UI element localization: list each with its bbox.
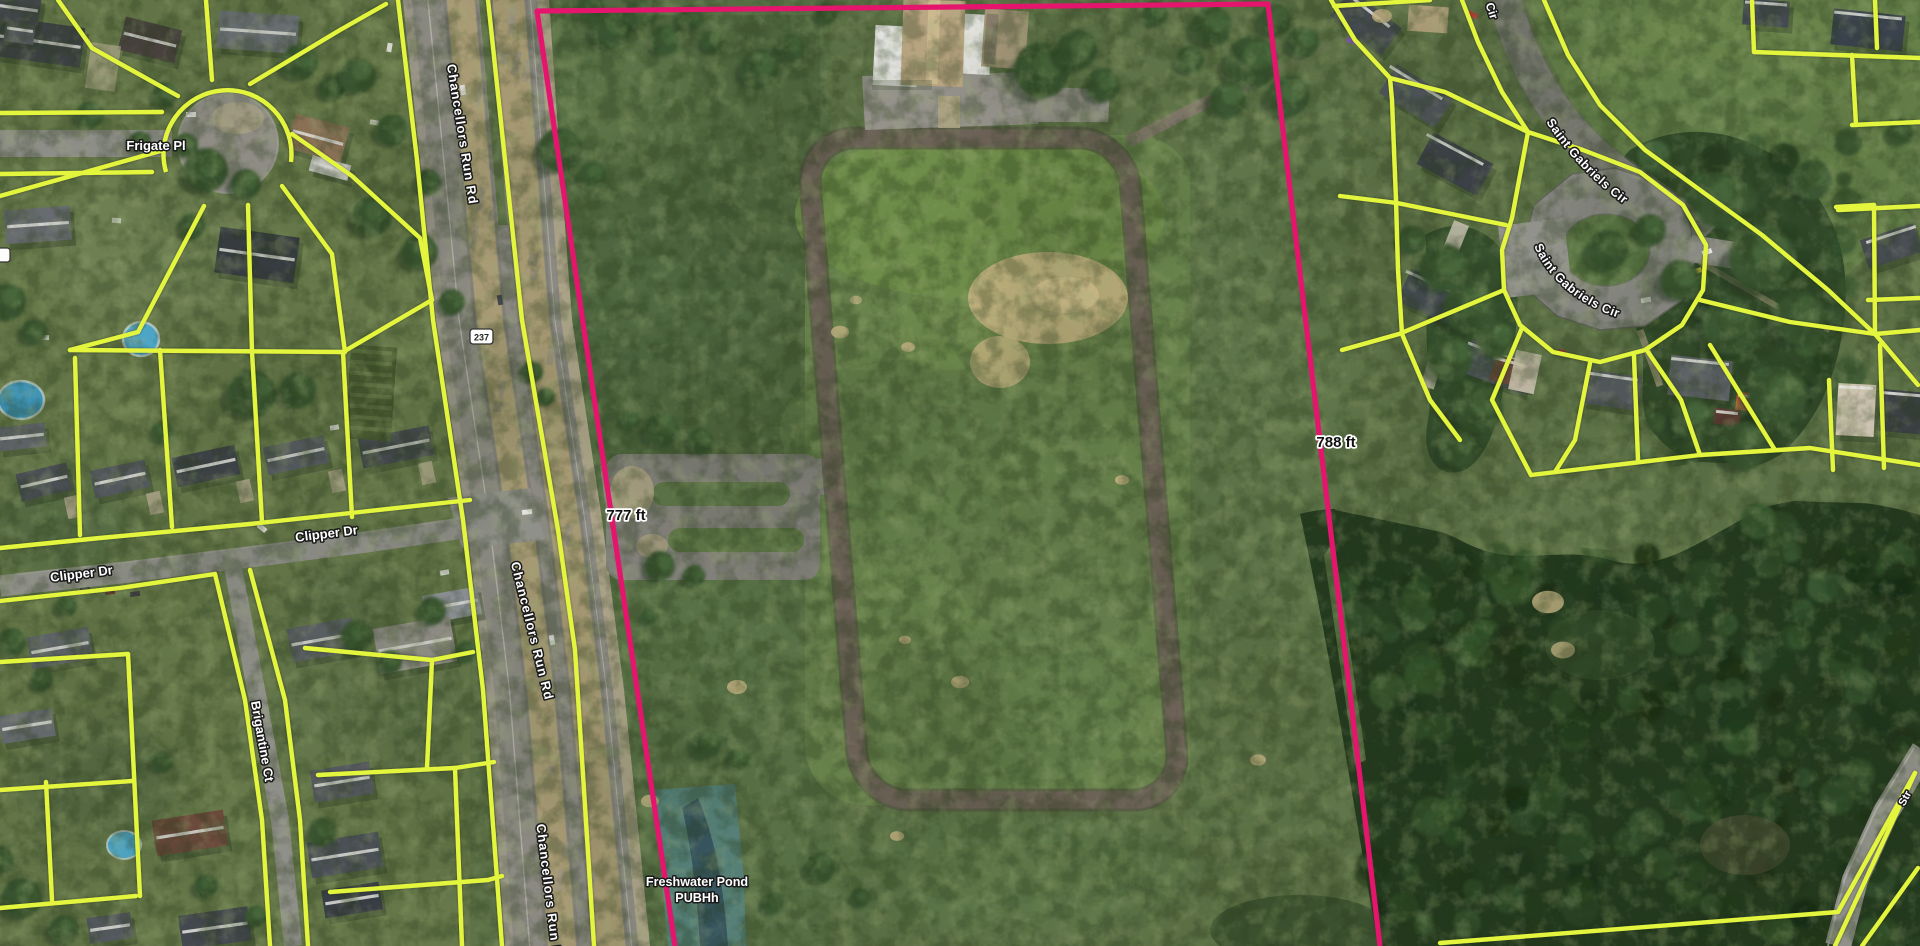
- svg-text:Freshwater Pond: Freshwater Pond: [646, 875, 748, 889]
- svg-text:777 ft: 777 ft: [606, 507, 645, 524]
- svg-text:788 ft: 788 ft: [1316, 434, 1355, 451]
- svg-text:PUBHh: PUBHh: [675, 891, 718, 905]
- svg-text:Frigate Pl: Frigate Pl: [126, 138, 185, 153]
- svg-text:237: 237: [474, 333, 489, 343]
